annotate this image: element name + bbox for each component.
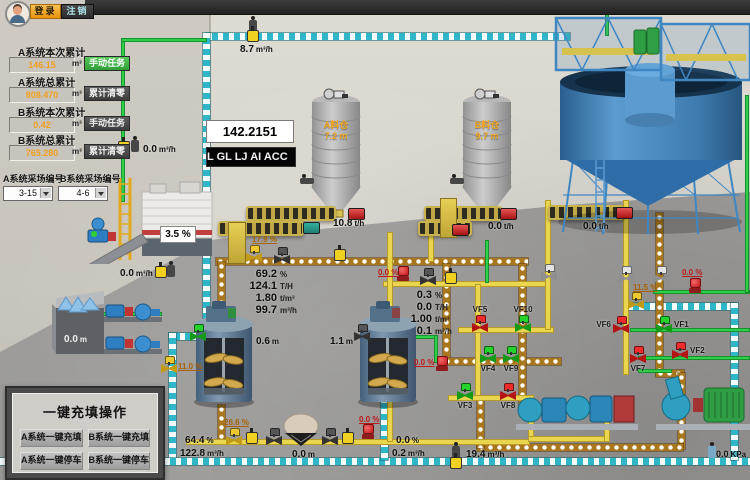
bottom-b-pct-reading: 0.0% — [396, 435, 419, 446]
dosing-pump[interactable] — [689, 278, 701, 293]
valve-open-pct: 11.5 % — [633, 283, 657, 292]
mixing-tank-a — [192, 300, 256, 415]
valve-VF5[interactable]: VF5 — [472, 315, 488, 332]
pipe-segment — [628, 303, 736, 310]
pipe-segment — [428, 234, 434, 262]
density-meter-icon — [334, 249, 346, 261]
pump-unit[interactable] — [104, 332, 162, 361]
valve-label: VF10 — [513, 305, 532, 314]
pipe-segment — [383, 281, 547, 287]
dosing-pump[interactable] — [436, 356, 448, 371]
silo-a-level-sensor — [300, 178, 314, 184]
valve-label: VF8 — [501, 401, 516, 410]
valve-VF6[interactable]: VF6 — [613, 316, 629, 333]
gate-valve[interactable] — [541, 264, 557, 281]
bottom-a-pct-reading: 64.4% — [185, 435, 214, 446]
pump-unit[interactable] — [104, 300, 162, 329]
a-total-value[interactable] — [9, 87, 75, 103]
panel-title: 一键充填操作 — [13, 402, 157, 421]
pump-speed-pct: 0.0 % — [414, 358, 434, 367]
b-one-key-fill-button[interactable]: B系统一键充填 — [88, 429, 151, 447]
valve-VF8[interactable]: VF8 — [500, 383, 516, 400]
valve-VF2[interactable]: VF2 — [672, 342, 688, 359]
valve-label: VF4 — [481, 364, 496, 373]
pipe-segment — [169, 333, 176, 461]
gate-valve[interactable] — [653, 266, 669, 283]
manual-valve[interactable] — [161, 356, 177, 373]
valve-label: VF6 — [596, 320, 611, 329]
valve-label: VF7 — [631, 364, 646, 373]
a-total-unit: m³ — [72, 89, 82, 98]
valve-body — [656, 324, 672, 333]
user-avatar-icon[interactable] — [5, 1, 31, 27]
line-a-readings: 69.2% 124.1T/H 1.80t/m³ 99.7m³/h — [245, 268, 297, 316]
drive-motor-icon — [634, 28, 659, 54]
pipe-segment — [218, 262, 225, 304]
one-key-filling-panel: 一键充填操作 A系统一键充填 B系统一键充填 A系统一键停车 B系统一键停车 — [5, 386, 165, 480]
b-one-key-stop-button[interactable]: B系统一键停车 — [88, 452, 151, 470]
b-site-select[interactable]: 4-6 — [58, 186, 108, 201]
flow-meter-icon — [247, 30, 259, 42]
b-total-value[interactable] — [9, 145, 75, 161]
silo-a: A料仓 7.2 m — [309, 88, 363, 223]
silo-a-label: A料仓 7.2 m — [309, 118, 363, 141]
valve-label: VF5 — [473, 305, 488, 314]
tank-b-inlet-valve[interactable] — [354, 324, 370, 341]
pipe-segment — [638, 356, 750, 360]
b-site-label: B系统采场编号 — [60, 172, 121, 185]
valve-VF7[interactable]: VF7 — [630, 346, 646, 363]
valve-VF3[interactable]: VF3 — [457, 383, 473, 400]
pipe-segment — [630, 328, 750, 332]
pump-speed-pct: 0.0 % — [682, 268, 702, 277]
conveyor-motor[interactable] — [452, 224, 469, 236]
a-one-key-stop-button[interactable]: A系统一键停车 — [20, 452, 83, 470]
discharge-hopper — [281, 413, 321, 454]
scada-screen: 登录 注销 A系统本次累计 m³ 手动任务 A系统总累计 m³ 累计清零 B系统… — [0, 0, 750, 480]
top-flow-reading: 8.7m³/h — [240, 44, 273, 55]
valve-open-pct: 11.0 % — [178, 362, 202, 371]
pipe-segment — [207, 33, 570, 40]
flow-transmitter — [131, 140, 139, 152]
return-flow-reading: 19.4m³/h — [466, 449, 504, 460]
inline-valve[interactable] — [274, 247, 290, 264]
a-session-value[interactable] — [9, 57, 75, 73]
flow-meter-icon — [342, 432, 354, 444]
flow-meter-icon — [246, 432, 258, 444]
valve-label: VF2 — [690, 346, 705, 355]
pipe-segment — [485, 240, 489, 283]
dosing-pump[interactable] — [397, 266, 409, 281]
return-pump-set[interactable] — [656, 370, 750, 437]
silo-b: B料仓 9.7 m — [460, 88, 514, 223]
login-button[interactable]: 登录 — [30, 4, 61, 19]
pipe-segment — [121, 38, 207, 42]
pipe-segment — [216, 258, 528, 265]
pipe-segment — [475, 284, 481, 400]
thickener-tank — [548, 10, 750, 241]
tank-a-inlet-valve[interactable] — [190, 324, 206, 341]
valve-VF4[interactable]: VF4 — [480, 346, 496, 363]
valve-label: VF9 — [504, 364, 519, 373]
bin-level-reading: 0.0m — [64, 334, 87, 345]
b-session-unit: m³ — [72, 119, 82, 128]
b-site-value: 4-6 — [76, 188, 89, 198]
pressure-sensor-icon — [708, 446, 716, 458]
filling-pump-set[interactable] — [516, 380, 638, 437]
logout-button[interactable]: 注销 — [61, 4, 94, 19]
inline-valve[interactable] — [322, 428, 338, 445]
inline-valve[interactable] — [266, 428, 282, 445]
pipe-segment — [477, 444, 683, 451]
manual-valve[interactable] — [226, 428, 242, 445]
reset-total-button-a[interactable]: 累计清零 — [84, 86, 130, 101]
tank-b-level-reading: 1.1m — [330, 336, 353, 347]
conveyor-motor[interactable] — [616, 207, 633, 219]
valve-VF9[interactable]: VF9 — [503, 346, 519, 363]
left-flow-reading: 0.0m³/h — [143, 144, 176, 155]
reset-total-button-b[interactable]: 累计清零 — [84, 144, 130, 159]
manual-valve[interactable] — [246, 245, 262, 262]
flow-meter-icon — [155, 266, 167, 278]
blower-icon — [324, 89, 348, 99]
pressure-reading: 0.0KPa — [716, 449, 746, 459]
manual-task-button-b[interactable]: 手动任务 — [84, 116, 130, 131]
water-bin — [52, 288, 108, 363]
conveyor-a-reading: 10.8t/h — [333, 218, 364, 229]
conveyor-a1[interactable] — [246, 206, 336, 221]
valve-VF1[interactable]: VF1 — [656, 316, 672, 333]
panel-inner: 一键充填操作 A系统一键充填 B系统一键充填 A系统一键停车 B系统一键停车 — [12, 393, 158, 473]
a-one-key-fill-button[interactable]: A系统一键充填 — [20, 429, 83, 447]
b-session-value[interactable] — [9, 117, 75, 133]
plant-concentration-readout: 3.5 % — [160, 226, 196, 243]
conveyor-b-reading: 0.0t/h — [583, 221, 609, 232]
dosing-pump[interactable] — [362, 424, 374, 439]
silo-b-level-sensor — [450, 178, 464, 184]
inline-valve[interactable] — [420, 268, 436, 285]
valve-VF10[interactable]: VF10 — [515, 315, 531, 332]
bottom-a-flow-reading: 122.8m³/h — [180, 448, 224, 459]
pump-speed-pct: 0.0 % — [359, 415, 379, 424]
b-total-unit: m³ — [72, 147, 82, 156]
blower-icon — [475, 89, 499, 99]
marquee-display: L GL LJ AI ACC — [206, 147, 296, 167]
agitator-motor-icon — [392, 308, 400, 318]
chevron-down-icon[interactable] — [95, 188, 106, 198]
silo-b-label: B料仓 9.7 m — [460, 118, 514, 141]
pump-speed-pct: 0.0 % — [378, 268, 398, 277]
line-b-readings: 0.3% 0.0T/H 1.00t/m³ 0.1m³/h — [400, 289, 452, 337]
a-site-value: 3-15 — [19, 188, 37, 198]
a-session-unit: m³ — [72, 59, 82, 68]
conveyor-mid1[interactable] — [424, 206, 502, 221]
valve-actuator — [660, 316, 670, 324]
manual-task-button-a[interactable]: 手动任务 — [84, 56, 130, 71]
manual-valve[interactable] — [628, 292, 644, 309]
a-site-select[interactable]: 3-15 — [3, 186, 53, 201]
flow-meter-icon — [450, 457, 462, 469]
hopper-level-reading: 0.0m — [292, 449, 315, 460]
valve-open-pct: 26.6 % — [224, 418, 249, 427]
pipe-segment — [443, 358, 561, 365]
flow-transmitter — [167, 265, 175, 277]
top-dark-strip — [85, 0, 750, 15]
conveyor-motor[interactable] — [500, 208, 517, 220]
density-meter-icon — [445, 272, 457, 284]
counter-display: 142.2151 — [206, 120, 294, 143]
plant-flow-reading: 0.0m³/h — [120, 268, 153, 279]
valve-label: VF1 — [674, 320, 689, 329]
a-site-label: A系统采场编号 — [3, 172, 64, 185]
chevron-down-icon[interactable] — [40, 188, 51, 198]
conveyor-mid-reading: 0.0t/h — [488, 221, 514, 232]
valve-open-pct: 17.9 % — [252, 235, 277, 244]
conveyor-motor[interactable] — [303, 222, 320, 234]
gate-valve[interactable] — [618, 266, 634, 283]
valve-label: VF3 — [458, 401, 473, 410]
bottom-b-flow-reading: 0.2m³/h — [392, 448, 425, 459]
agitator-motor-icon — [228, 308, 236, 318]
tank-a-level-reading: 0.6m — [256, 336, 279, 347]
pipe-segment — [653, 290, 750, 294]
bucket-elevator — [228, 222, 246, 264]
